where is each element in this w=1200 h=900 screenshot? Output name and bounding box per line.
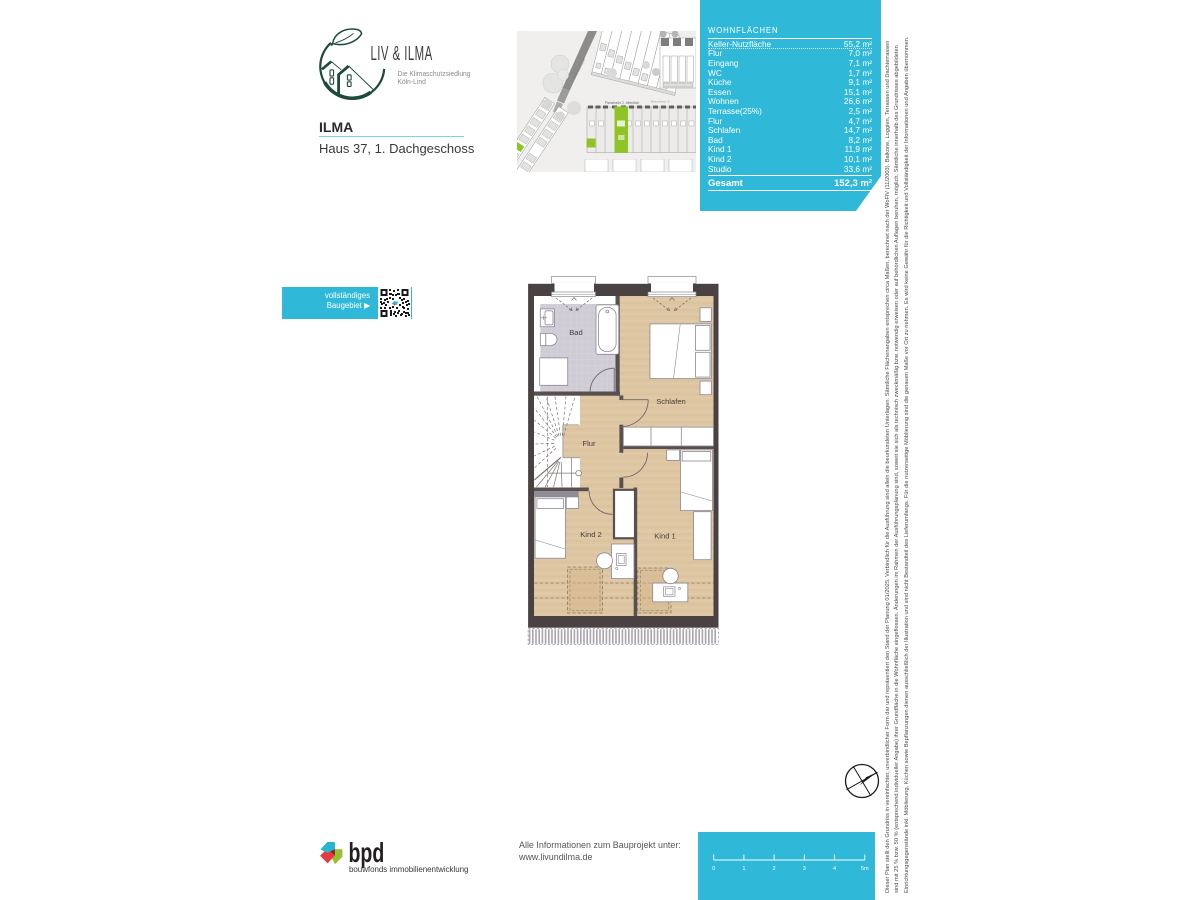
- svg-text:0: 0: [712, 866, 715, 872]
- svg-text:4: 4: [833, 866, 836, 872]
- svg-text:Besucherpl. 9: Besucherpl. 9: [651, 100, 670, 104]
- svg-text:Schlafen: Schlafen: [656, 397, 686, 406]
- svg-text:LIV & ILMA: LIV & ILMA: [371, 43, 433, 65]
- svg-text:Planstraße 2, öffentlich: Planstraße 2, öffentlich: [605, 101, 640, 105]
- svg-text:2: 2: [773, 866, 776, 872]
- svg-text:5m: 5m: [861, 866, 869, 872]
- svg-text:Bad: Bad: [569, 328, 583, 337]
- svg-text:Flur: Flur: [582, 439, 596, 448]
- svg-text:Köln-Lind: Köln-Lind: [398, 79, 426, 86]
- svg-text:1: 1: [742, 866, 745, 872]
- svg-text:3: 3: [803, 866, 806, 872]
- svg-text:Kind 1: Kind 1: [654, 532, 676, 541]
- svg-text:Die Klimaschutzsiedlung: Die Klimaschutzsiedlung: [398, 71, 471, 78]
- svg-text:Kind 2: Kind 2: [580, 530, 602, 539]
